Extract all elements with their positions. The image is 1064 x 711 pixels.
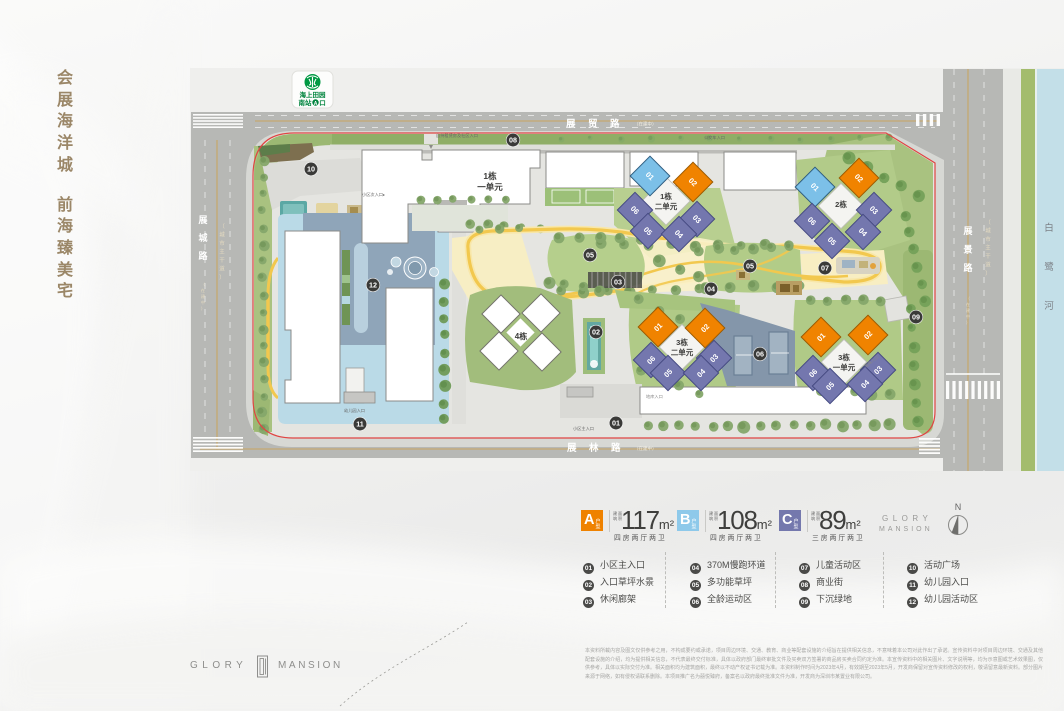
svg-text:2栋: 2栋 bbox=[835, 199, 847, 209]
svg-text:（: （ bbox=[201, 282, 205, 287]
svg-text:二单元: 二单元 bbox=[655, 201, 678, 211]
svg-text:城: 城 bbox=[985, 228, 991, 235]
svg-text:海上田园: 海上田园 bbox=[300, 90, 327, 99]
svg-text:城: 城 bbox=[219, 232, 225, 239]
svg-text:路: 路 bbox=[963, 262, 973, 273]
svg-text:展: 展 bbox=[198, 215, 207, 225]
svg-text:展贸路: 展贸路 bbox=[566, 118, 632, 130]
svg-text:幼儿园入口: 幼儿园入口 bbox=[344, 407, 365, 414]
svg-text:河: 河 bbox=[1044, 300, 1054, 312]
svg-text:主: 主 bbox=[219, 248, 225, 256]
svg-text:干: 干 bbox=[219, 257, 225, 264]
svg-text:1栋: 1栋 bbox=[660, 191, 672, 201]
svg-text:4栋: 4栋 bbox=[515, 331, 527, 341]
svg-text:白: 白 bbox=[1044, 222, 1054, 234]
svg-text:小区次入口▸: 小区次入口▸ bbox=[362, 191, 385, 198]
svg-text:（在建中）: （在建中） bbox=[634, 445, 657, 452]
svg-text:3栋: 3栋 bbox=[838, 352, 850, 362]
svg-text:11: 11 bbox=[356, 420, 364, 429]
svg-text:（在建中）: （在建中） bbox=[634, 121, 657, 128]
svg-text:自持租赁房及社区入口: 自持租赁房及社区入口 bbox=[436, 132, 478, 139]
svg-text:主: 主 bbox=[985, 244, 991, 252]
svg-text:（: （ bbox=[985, 219, 991, 226]
svg-text:02: 02 bbox=[592, 328, 600, 337]
svg-text:鹭: 鹭 bbox=[1044, 262, 1054, 273]
svg-text:04: 04 bbox=[707, 285, 715, 294]
svg-text:06: 06 bbox=[756, 350, 764, 359]
svg-text:05: 05 bbox=[586, 251, 594, 260]
svg-text:口: 口 bbox=[319, 99, 326, 107]
svg-text:南站: 南站 bbox=[299, 98, 313, 107]
svg-text:中: 中 bbox=[201, 299, 205, 306]
svg-text:10: 10 bbox=[307, 165, 315, 174]
svg-text:（: （ bbox=[966, 296, 970, 301]
svg-text:景: 景 bbox=[963, 245, 972, 255]
svg-text:二单元: 二单元 bbox=[671, 347, 694, 357]
svg-text:一单元: 一单元 bbox=[833, 362, 856, 372]
svg-text:展林路: 展林路 bbox=[567, 442, 633, 454]
svg-text:3栋: 3栋 bbox=[676, 337, 688, 347]
svg-text:干: 干 bbox=[985, 253, 991, 260]
svg-text:（: （ bbox=[219, 223, 225, 230]
svg-text:12: 12 bbox=[369, 281, 377, 290]
svg-text:08: 08 bbox=[509, 136, 517, 145]
svg-text:市: 市 bbox=[219, 239, 225, 247]
svg-text:）: ） bbox=[219, 274, 225, 281]
svg-text:03: 03 bbox=[614, 278, 622, 287]
svg-text:）: ） bbox=[966, 320, 970, 325]
svg-text:展: 展 bbox=[963, 226, 972, 236]
svg-text:09: 09 bbox=[912, 313, 920, 322]
svg-text:道: 道 bbox=[219, 265, 225, 273]
svg-text:城: 城 bbox=[198, 232, 207, 243]
svg-text:）: ） bbox=[985, 270, 991, 277]
svg-text:05: 05 bbox=[746, 262, 754, 271]
svg-text:01: 01 bbox=[612, 419, 620, 428]
svg-text:在: 在 bbox=[966, 301, 970, 307]
svg-text:07: 07 bbox=[821, 264, 829, 273]
svg-text:1栋: 1栋 bbox=[483, 171, 497, 181]
svg-text:地库入口: 地库入口 bbox=[646, 393, 663, 400]
svg-text:公交车入口: 公交车入口 bbox=[704, 134, 725, 141]
svg-text:N: N bbox=[955, 502, 962, 512]
svg-text:市: 市 bbox=[985, 235, 991, 243]
svg-text:道: 道 bbox=[985, 261, 991, 269]
svg-text:小区主入口: 小区主入口 bbox=[573, 425, 594, 432]
svg-text:）: ） bbox=[201, 306, 205, 311]
svg-text:在: 在 bbox=[201, 287, 205, 293]
svg-text:一单元: 一单元 bbox=[477, 182, 503, 192]
svg-text:A: A bbox=[314, 101, 318, 107]
svg-text:路: 路 bbox=[198, 250, 208, 261]
svg-text:中: 中 bbox=[966, 313, 970, 320]
